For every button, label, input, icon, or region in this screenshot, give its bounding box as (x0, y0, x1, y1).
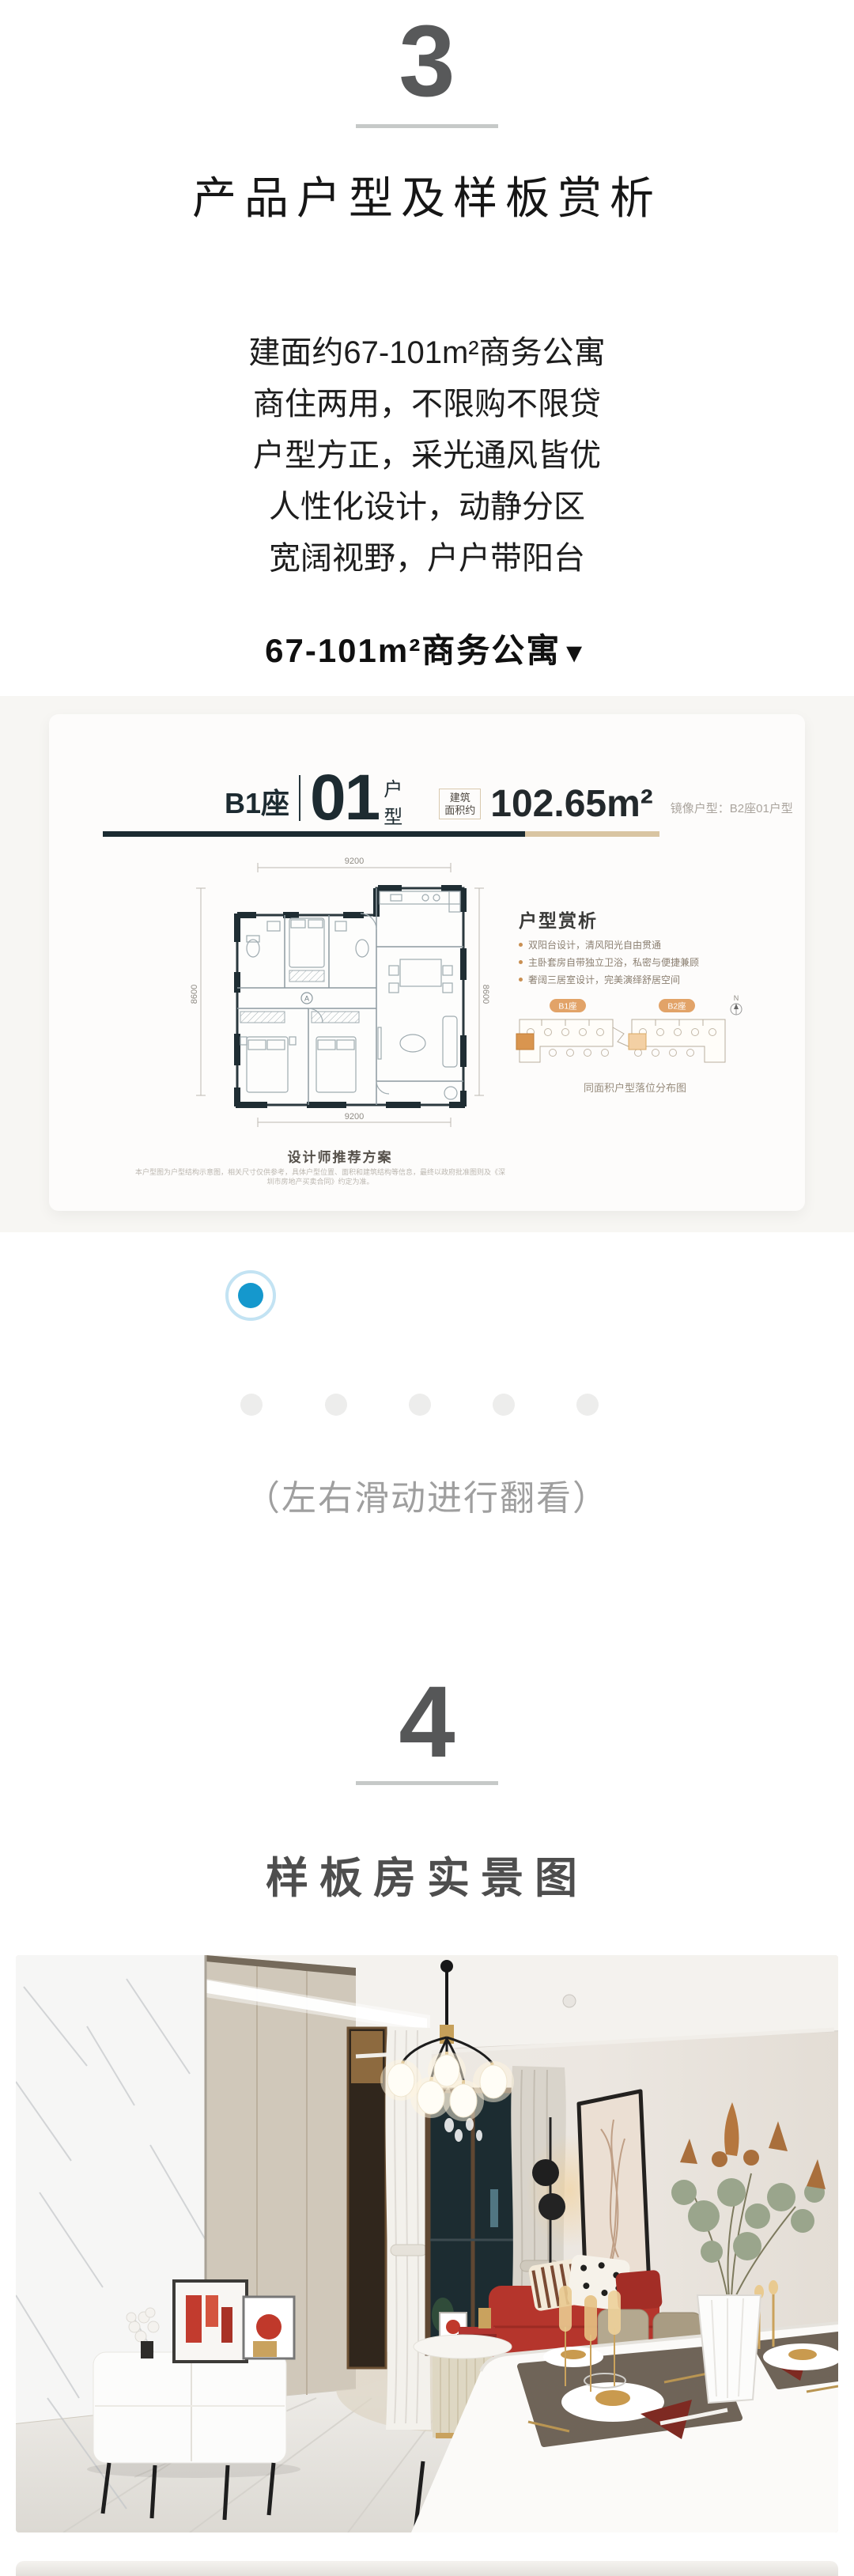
section-4-number: 4 (0, 1672, 854, 1773)
bullet-dot-icon (519, 978, 523, 982)
header-divider (103, 831, 659, 837)
plan-ac-label: A (304, 995, 309, 1003)
unit-label: 户 型 (384, 774, 402, 824)
bullet-item: 奢阔三居室设计，完美演绎舒居空间 (519, 973, 780, 986)
plan-dim-left: 8600 (190, 985, 199, 1004)
area-value: 102.65m² (490, 787, 652, 821)
building-location-diagram: B1座 B2座 N (512, 989, 758, 1078)
analysis-heading: 户型赏析 (519, 906, 598, 932)
bullet-text: 主卧套房自带独立卫浴，私密与便捷兼顾 (528, 955, 699, 969)
unit-number: 01 (310, 771, 379, 824)
section-4-title: 样板房实景图 (0, 1843, 854, 1905)
intro-paragraph: 建面约67-101m²商务公寓 商住两用，不限购不限贷 户型方正，采光通风皆优 … (0, 327, 854, 584)
down-triangle-icon: ▼ (561, 638, 589, 668)
paragraph-line: 建面约67-101m²商务公寓 (0, 327, 854, 379)
apartment-subtitle: 67-101m²商务公寓▼ (0, 624, 854, 672)
compass-icon: N (731, 994, 742, 1015)
subtitle-text: 67-101m²商务公寓 (265, 632, 561, 669)
paragraph-line: 宽阔视野，户户带阳台 (0, 533, 854, 584)
carousel-active-dot[interactable] (225, 1270, 276, 1321)
section-3-number: 3 (0, 11, 854, 112)
next-image-edge (16, 2561, 838, 2576)
bullet-item: 主卧套房自带独立卫浴，私密与便捷兼顾 (519, 955, 780, 969)
paragraph-line: 商住两用，不限购不限贷 (0, 379, 854, 430)
plan-dim-right: 8600 (481, 985, 490, 1004)
carousel-dot[interactable] (240, 1394, 263, 1416)
bullet-dot-icon (519, 943, 523, 947)
divider-dark (103, 831, 525, 837)
area-group: 建筑 面积约 102.65m² 镜像户型：B2座01户型 (439, 787, 793, 824)
floor-plan-drawing: 9200 9200 8600 8600 (188, 853, 492, 1135)
swipe-hint: （左右滑动进行翻看） (0, 1470, 854, 1520)
header-separator (299, 775, 300, 821)
carousel-active-dot-core (238, 1283, 263, 1308)
paragraph-line: 人性化设计，动静分区 (0, 482, 854, 533)
carousel-dot[interactable] (409, 1394, 431, 1416)
svg-text:N: N (734, 994, 739, 1002)
bullet-dot-icon (519, 960, 523, 964)
section-4-underline (356, 1781, 498, 1785)
sample-room-illustration (16, 1955, 838, 2532)
plan-dim-top: 9200 (345, 857, 364, 866)
divider-beige (525, 831, 659, 837)
mirror-note: 镜像户型：B2座01户型 (671, 800, 793, 821)
floorplan-header: B1座 01 户 型 建筑 面积约 102.65m² 镜像户型：B2座01户型 (225, 771, 793, 824)
carousel-dot[interactable] (325, 1394, 347, 1416)
area-badge: 建筑 面积约 (439, 789, 481, 819)
sample-room-photo[interactable] (16, 1955, 838, 2532)
block-label: B1座 (225, 789, 289, 824)
plan-dim-bottom: 9200 (345, 1112, 364, 1122)
bullet-text: 双阳台设计，清风阳光自由贯通 (528, 938, 661, 951)
carousel-dot[interactable] (576, 1394, 599, 1416)
recommend-caption: 设计师推荐方案 (188, 1146, 492, 1166)
unit-label-bottom: 型 (384, 801, 402, 829)
plan-disclaimer: 本户型图为户型结构示意图，相关尺寸仅供参考，具体户型位置、面积和建筑结构等信息，… (134, 1168, 506, 1186)
badge-b2: B2座 (667, 1001, 686, 1012)
area-badge-line1: 建筑 (444, 792, 475, 804)
bullet-item: 双阳台设计，清风阳光自由贯通 (519, 938, 780, 951)
carousel-dot[interactable] (493, 1394, 515, 1416)
floorplan-card[interactable]: B1座 01 户 型 建筑 面积约 102.65m² 镜像户型：B2座01户型 (49, 714, 805, 1211)
bullet-text: 奢阔三居室设计，完美演绎舒居空间 (528, 973, 680, 986)
page: 3 产品户型及样板赏析 建面约67-101m²商务公寓 商住两用，不限购不限贷 … (0, 0, 854, 2576)
unit-label-top: 户 (384, 774, 402, 801)
analysis-bullets: 双阳台设计，清风阳光自由贯通 主卧套房自带独立卫浴，私密与便捷兼顾 奢阔三居室设… (519, 938, 780, 990)
section-3-underline (356, 124, 498, 128)
location-caption: 同面积户型落位分布图 (514, 1080, 756, 1095)
area-badge-line2: 面积约 (444, 804, 475, 817)
paragraph-line: 户型方正，采光通风皆优 (0, 430, 854, 482)
badge-b1: B1座 (558, 1001, 576, 1012)
section-3-title: 产品户型及样板赏析 (0, 163, 854, 227)
